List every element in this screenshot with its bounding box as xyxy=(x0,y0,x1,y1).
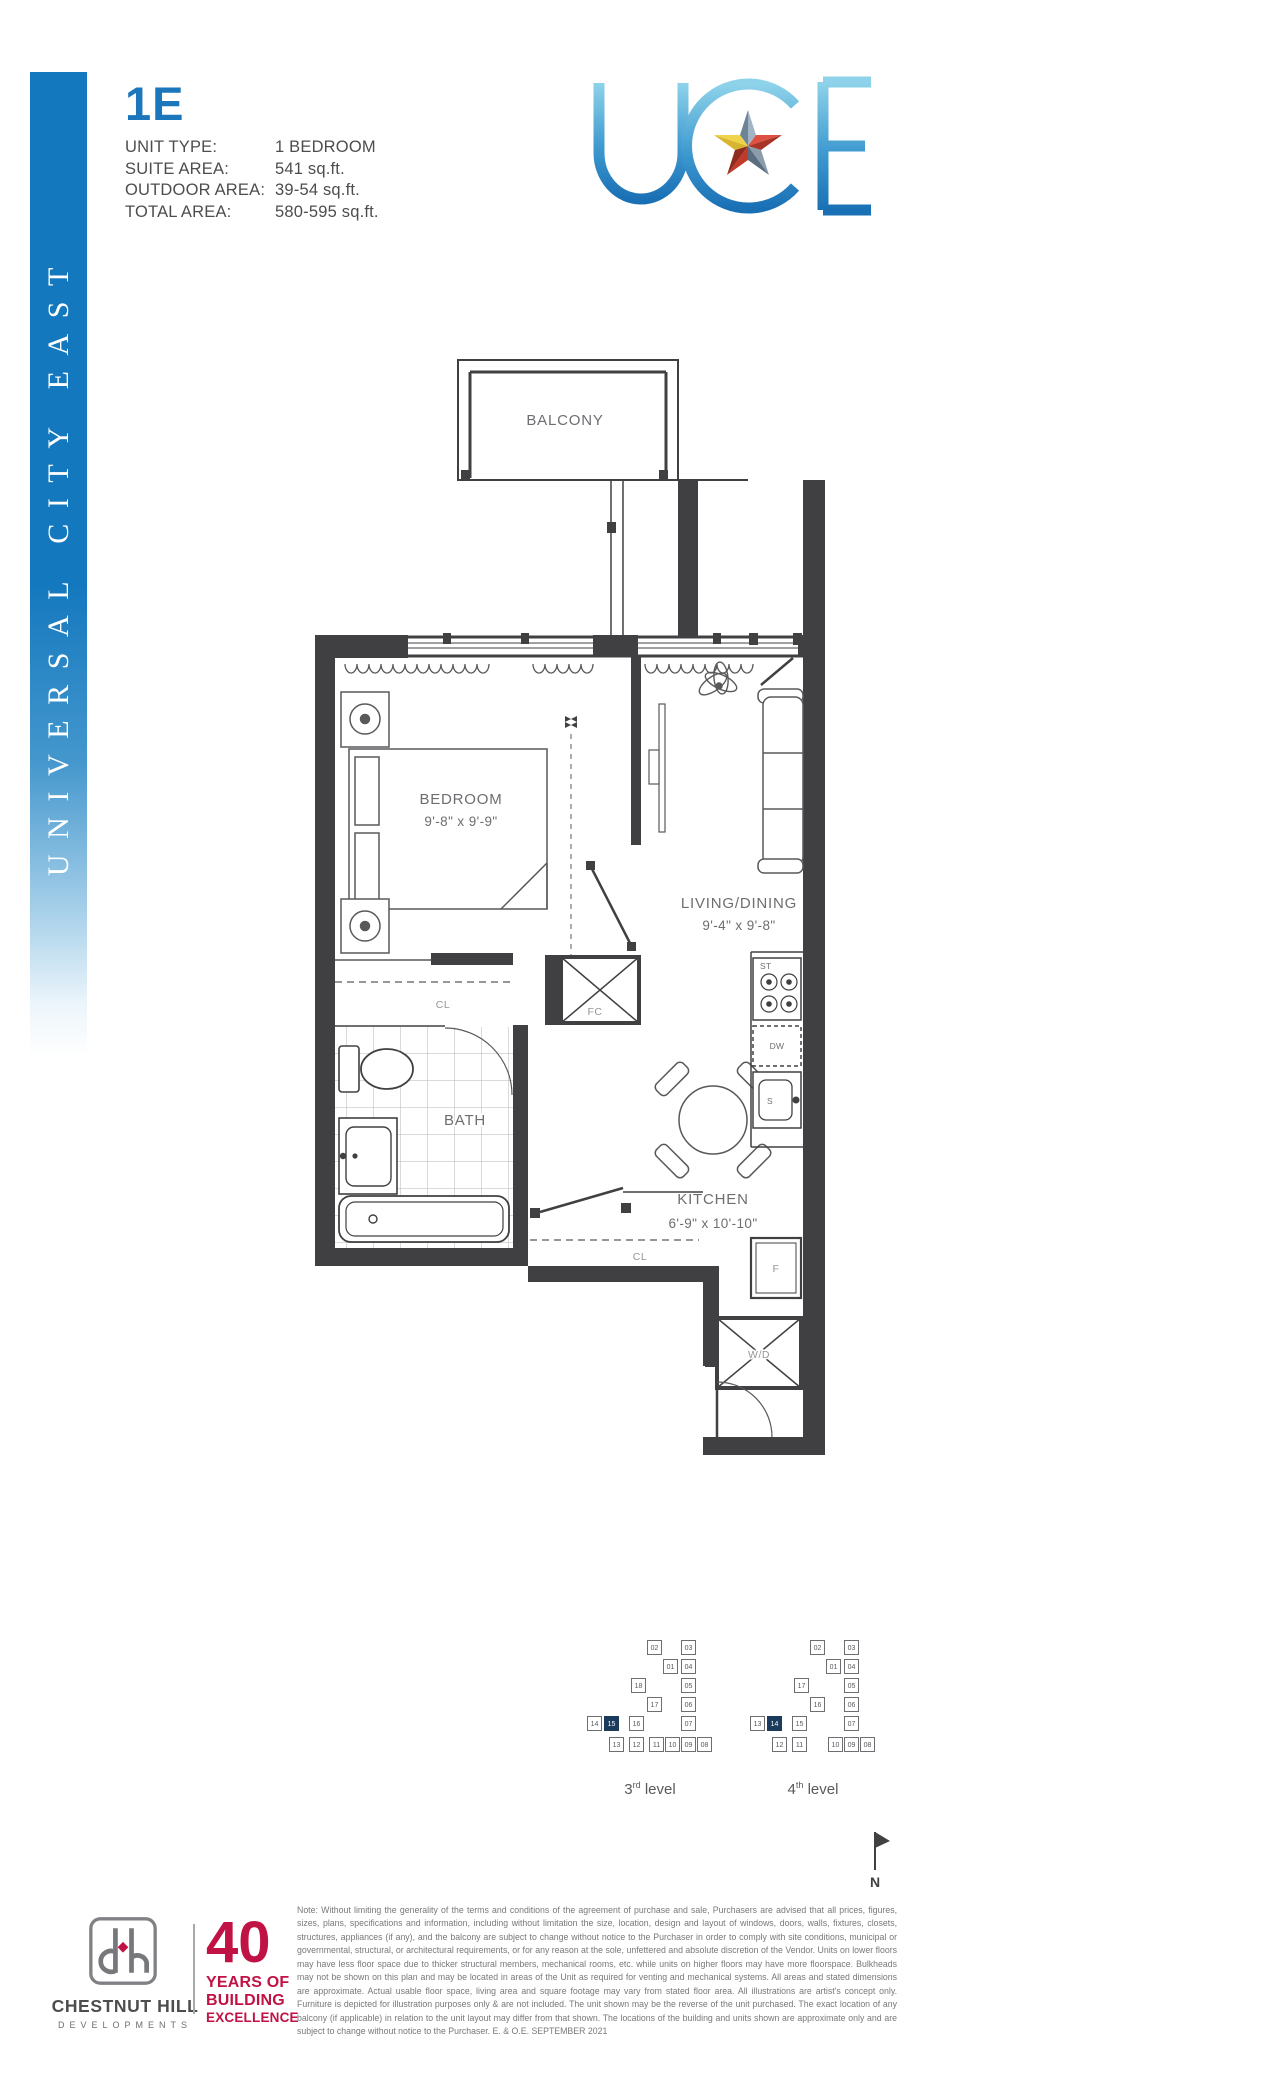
keyplan-unit: 17 xyxy=(794,1678,809,1693)
stove-label: ST xyxy=(760,961,771,971)
living-furniture xyxy=(649,689,803,873)
star-icon xyxy=(714,110,782,175)
door-jamb xyxy=(749,633,758,645)
kitchen-dims: 6'-9" x 10'-10" xyxy=(668,1216,757,1231)
keyplan-unit: 15 xyxy=(792,1716,807,1731)
keyplan-unit: 18 xyxy=(631,1678,646,1693)
balcony-side-wall xyxy=(611,480,623,635)
keyplan-unit: 06 xyxy=(681,1697,696,1712)
keyplan-caption: 3rd level xyxy=(585,1780,715,1798)
balcony-side-wall-thick xyxy=(678,480,698,637)
uce-logo xyxy=(583,73,883,223)
detail-label: UNIT TYPE: xyxy=(125,138,275,160)
door-jamb xyxy=(793,633,802,645)
years-badge: 40 YEARS OF BUILDING EXCELLENCE xyxy=(206,1917,299,2025)
detail-value: 39-54 sq.ft. xyxy=(275,181,379,203)
keyplan-unit: 07 xyxy=(681,1716,696,1731)
north-arrow-icon: N xyxy=(868,1830,894,1890)
window-mullion xyxy=(443,633,451,644)
footer-divider xyxy=(193,1924,195,2014)
keyplan-unit: 04 xyxy=(681,1659,696,1674)
page-title: 1E xyxy=(125,76,185,131)
balcony-label: BALCONY xyxy=(526,412,603,429)
bedroom-dims: 9'-8" x 9'-9" xyxy=(424,814,497,829)
developer-subtitle: DEVELOPMENTS xyxy=(47,2020,203,2030)
keyplan-3rd-level: 02 03 01 04 18 05 17 06 14 15 16 07 13 1… xyxy=(585,1640,715,1756)
living-label: LIVING/DINING xyxy=(681,895,797,912)
keyplan-unit: 16 xyxy=(629,1716,644,1731)
door-jamb xyxy=(627,942,636,951)
window-mullion xyxy=(713,633,721,644)
wall-right xyxy=(803,480,825,1455)
wall-bottom-left xyxy=(315,1248,528,1266)
fridge-label: F xyxy=(773,1263,780,1275)
wall-bath xyxy=(513,1025,528,1266)
keyplan-unit: 16 xyxy=(810,1697,825,1712)
sink-label: S xyxy=(767,1096,773,1106)
keyplan-unit: 10 xyxy=(828,1737,843,1752)
detail-label: OUTDOOR AREA: xyxy=(125,181,275,203)
keyplan-unit: 01 xyxy=(826,1659,841,1674)
washer-dryer-label: W/D xyxy=(748,1349,770,1361)
keyplan-unit: 03 xyxy=(844,1640,859,1655)
badge-number: 40 xyxy=(206,1917,299,1968)
keyplan-unit: 11 xyxy=(792,1737,807,1752)
north-label: N xyxy=(870,1874,880,1890)
window-covering-hatch xyxy=(345,664,753,673)
keyplan-unit: 07 xyxy=(844,1716,859,1731)
keyplan-unit: 08 xyxy=(860,1737,875,1752)
project-name-vertical: UNIVERSAL CITY EAST xyxy=(42,252,76,876)
keyplan-unit: 09 xyxy=(844,1737,859,1752)
badge-line2: BUILDING xyxy=(206,1992,299,2010)
badge-line1: YEARS OF xyxy=(206,1974,299,1992)
bedroom-closet xyxy=(335,953,513,982)
detail-value: 1 BEDROOM xyxy=(275,138,379,160)
closet-label: CL xyxy=(633,1251,647,1263)
closet-label: CL xyxy=(436,999,450,1011)
brochure-page: UNIVERSAL CITY EAST 1E UNIT TYPE: 1 BEDR… xyxy=(0,0,1275,2100)
detail-value: 541 sq.ft. xyxy=(275,160,379,182)
sidebar-banner: UNIVERSAL CITY EAST xyxy=(30,72,87,1057)
keyplan-unit: 14 xyxy=(587,1716,602,1731)
floorplan-drawing: BALCONY xyxy=(293,352,833,1477)
bathroom xyxy=(335,1026,513,1248)
wall-latch-mark xyxy=(607,522,616,533)
wall-entry-bottom xyxy=(703,1437,825,1455)
detail-value: 580-595 sq.ft. xyxy=(275,203,379,225)
balcony-door-leaf xyxy=(761,658,793,685)
bedroom-label: BEDROOM xyxy=(419,791,502,808)
kitchen-label: KITCHEN xyxy=(677,1191,748,1208)
keyplan-unit: 08 xyxy=(697,1737,712,1752)
keyplan-unit: 04 xyxy=(844,1659,859,1674)
keyplan-unit: 05 xyxy=(681,1678,696,1693)
wall-closet-bottom xyxy=(528,1266,703,1282)
bathtub-icon xyxy=(339,1196,509,1242)
keyplan-unit: 01 xyxy=(663,1659,678,1674)
legal-note: Note: Without limiting the generality of… xyxy=(297,1904,897,2039)
keyplan-unit: 17 xyxy=(647,1697,662,1712)
fan-coil-label: FC xyxy=(588,1006,603,1018)
keyplan-unit: 13 xyxy=(750,1716,765,1731)
keyplan-unit: 02 xyxy=(647,1640,662,1655)
detail-label: SUITE AREA: xyxy=(125,160,275,182)
keyplan-unit: 10 xyxy=(665,1737,680,1752)
keyplan-caption: 4th level xyxy=(748,1780,878,1798)
living-dims: 9'-4" x 9'-8" xyxy=(702,918,775,933)
keyplan-4th-level: 02 03 01 04 17 05 16 06 13 14 15 07 12 1… xyxy=(748,1640,878,1756)
keyplan-unit: 09 xyxy=(681,1737,696,1752)
keyplan-unit: 05 xyxy=(844,1678,859,1693)
keyplan-unit-highlighted: 15 xyxy=(604,1716,619,1731)
keyplan-unit: 11 xyxy=(649,1737,664,1752)
keyplan-unit: 02 xyxy=(810,1640,825,1655)
wall-left xyxy=(315,657,335,1264)
keyplan-unit: 12 xyxy=(772,1737,787,1752)
dishwasher-label: DW xyxy=(770,1041,785,1051)
wall-block xyxy=(593,635,638,657)
keyplan-unit: 03 xyxy=(681,1640,696,1655)
keyplan-unit: 13 xyxy=(609,1737,624,1752)
wall-block xyxy=(315,635,408,658)
badge-line3: EXCELLENCE xyxy=(206,2010,299,2025)
bath-label: BATH xyxy=(444,1112,486,1129)
detail-label: TOTAL AREA: xyxy=(125,203,275,225)
kitchen-appliances xyxy=(751,952,803,1298)
bedroom-door-leaf xyxy=(591,867,632,947)
chestnut-hill-logo xyxy=(88,1914,158,1988)
keyplan-unit: 12 xyxy=(629,1737,644,1752)
unit-details-table: UNIT TYPE: 1 BEDROOM SUITE AREA: 541 sq.… xyxy=(125,138,379,224)
window-mullion xyxy=(521,633,529,644)
developer-name: CHESTNUT HILL xyxy=(47,1996,203,2017)
keyplan-unit-highlighted: 14 xyxy=(767,1716,782,1731)
wall-bedroom-divider xyxy=(631,657,641,845)
keyplan-unit: 06 xyxy=(844,1697,859,1712)
toilet-icon xyxy=(339,1046,359,1092)
door-jamb xyxy=(586,861,595,870)
